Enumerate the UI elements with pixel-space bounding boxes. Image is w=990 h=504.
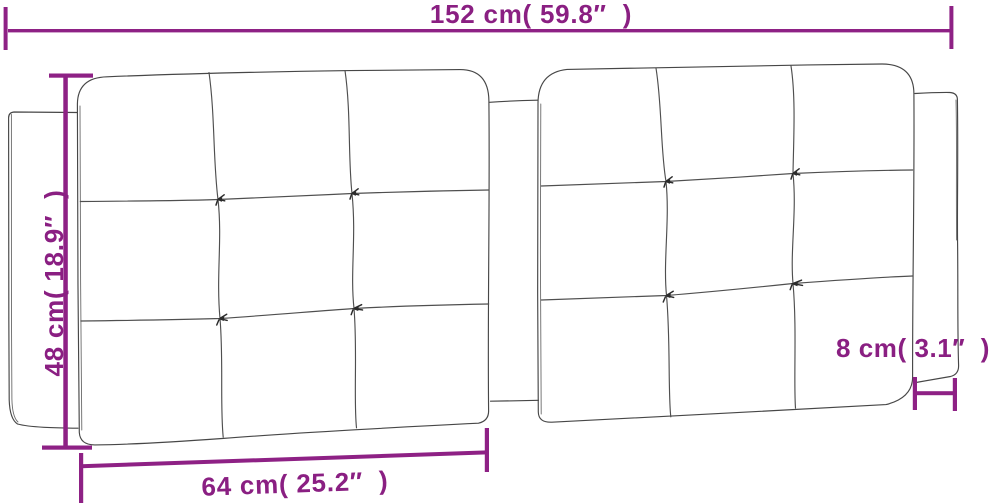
- svg-text:48 cm( 18.9″ ): 48 cm( 18.9″ ): [39, 189, 69, 376]
- svg-text:64 cm( 25.2″ ): 64 cm( 25.2″ ): [201, 465, 389, 502]
- svg-text:8 cm( 3.1″ ): 8 cm( 3.1″ ): [836, 333, 990, 363]
- svg-text:152 cm( 59.8″ ): 152 cm( 59.8″ ): [430, 0, 632, 29]
